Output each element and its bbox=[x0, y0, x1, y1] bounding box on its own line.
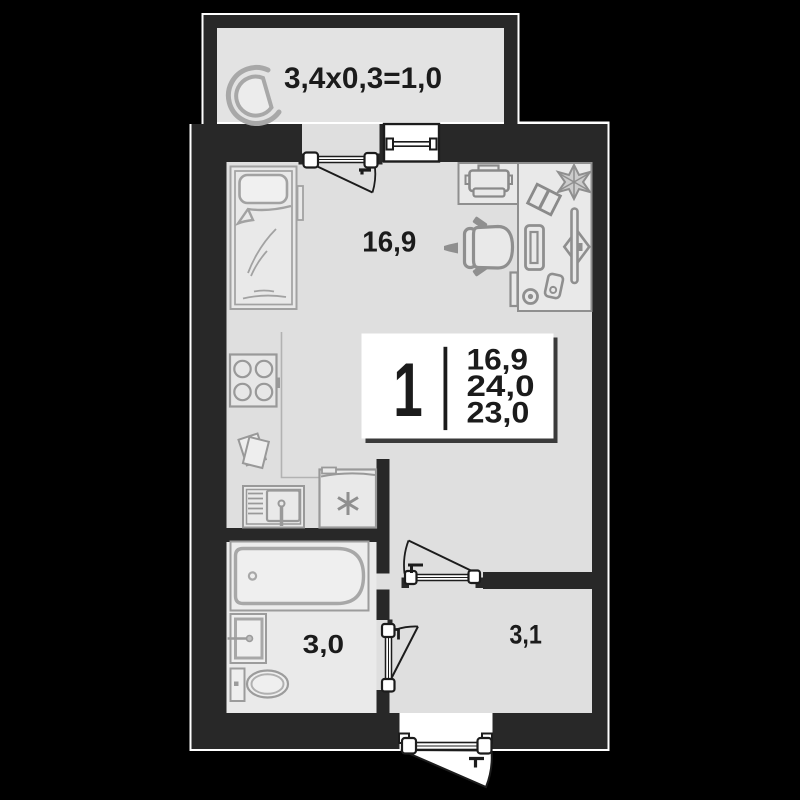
svg-text:3,4x0,3=1,0: 3,4x0,3=1,0 bbox=[284, 62, 442, 95]
svg-text:3,1: 3,1 bbox=[509, 619, 542, 649]
svg-text:3,0: 3,0 bbox=[303, 629, 344, 659]
svg-text:16,9: 16,9 bbox=[362, 227, 416, 259]
svg-text:1: 1 bbox=[393, 348, 423, 433]
svg-text:23,0: 23,0 bbox=[467, 397, 530, 430]
